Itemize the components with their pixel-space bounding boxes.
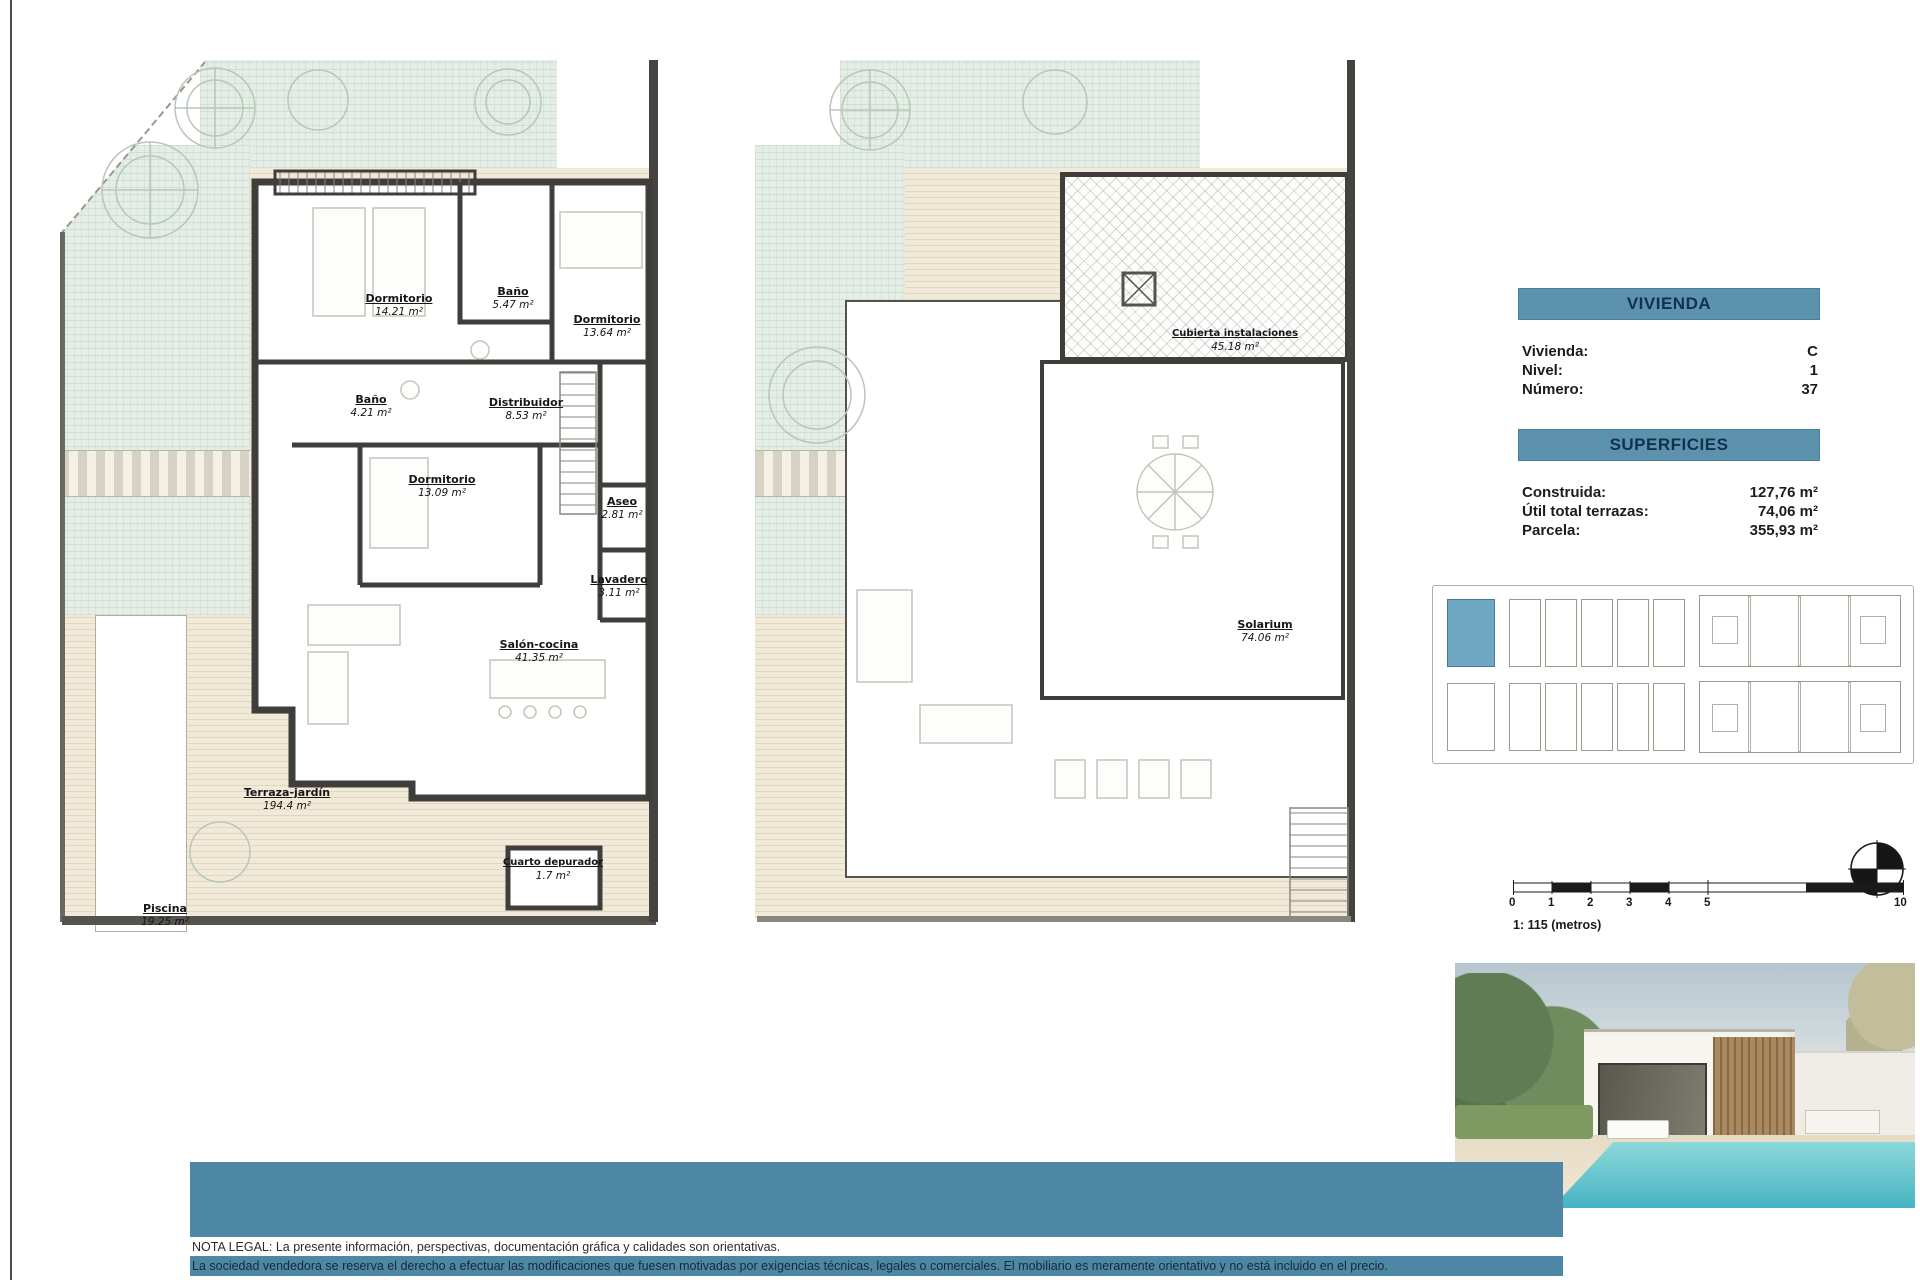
site-plan-block (1699, 681, 1901, 753)
site-plan-unit (1653, 599, 1685, 667)
site-plan-unit (1545, 599, 1577, 667)
room-label: Dormitorio13.09 m² (409, 473, 476, 500)
superficies-rows: Construida:127,76 m² Útil total terrazas… (1522, 483, 1818, 540)
site-plan-unit (1581, 683, 1613, 751)
info-row: Construida:127,76 m² (1522, 483, 1818, 502)
scale-tick: 1 (1548, 897, 1554, 909)
scale-tick: 3 (1626, 897, 1632, 909)
room-label: Cubierta instalaciones45.18 m² (1172, 328, 1298, 354)
scale-tick: 0 (1509, 897, 1515, 909)
room-label: Dormitorio13.64 m² (574, 313, 641, 340)
vivienda-header: VIVIENDA (1518, 288, 1820, 320)
scale-tick: 4 (1665, 897, 1671, 909)
site-plan-unit (1509, 599, 1541, 667)
superficies-header: SUPERFICIES (1518, 429, 1820, 461)
info-row: Parcela:355,93 m² (1522, 521, 1818, 540)
room-label: Piscina19.25 m² (141, 902, 189, 929)
site-plan-unit (1653, 683, 1685, 751)
site-plan-unit (1617, 599, 1649, 667)
scale-bar: 0 1 2 3 4 5 10 1: 115 (metros) (1513, 880, 1913, 952)
render-hedge (1455, 1105, 1593, 1139)
sheet-border-line (10, 0, 12, 1280)
floor-plan-roof: Cubierta instalaciones45.18 m² Solarium7… (755, 60, 1355, 935)
room-label: Salón-cocina41.35 m² (500, 638, 579, 665)
site-plan-unit (1581, 599, 1613, 667)
legal-note-line1: NOTA LEGAL: La presente información, per… (192, 1240, 1692, 1254)
render-wood-facade (1713, 1037, 1796, 1142)
scale-caption: 1: 115 (metros) (1513, 918, 1601, 932)
room-label: Aseo2.81 m² (601, 495, 642, 522)
vivienda-rows: Vivienda:C Nivel:1 Número:37 (1522, 342, 1818, 399)
legal-bar (190, 1162, 1563, 1237)
room-label: Baño5.47 m² (492, 285, 533, 312)
ground-plan-drawing (60, 60, 660, 935)
scale-tick: 5 (1704, 897, 1710, 909)
info-row: Nivel:1 (1522, 361, 1818, 380)
info-panel: VIVIENDA Vivienda:C Nivel:1 Número:37 SU… (1518, 288, 1820, 570)
info-row: Número:37 (1522, 380, 1818, 399)
room-label: Baño4.21 m² (350, 393, 391, 420)
render-dining-set (1805, 1110, 1881, 1134)
room-label: Dormitorio14.21 m² (366, 292, 433, 319)
info-row: Vivienda:C (1522, 342, 1818, 361)
site-plan-block (1699, 595, 1901, 667)
room-label: Terraza-jardín194.4 m² (244, 786, 330, 813)
info-row: Útil total terrazas:74,06 m² (1522, 502, 1818, 521)
room-label: Solarium74.06 m² (1237, 618, 1292, 645)
floor-plan-ground: Dormitorio14.21 m² Baño5.47 m² Dormitori… (60, 60, 660, 935)
site-plan (1432, 585, 1914, 764)
room-label: Lavadero3.11 m² (590, 573, 647, 600)
site-plan-unit (1545, 683, 1577, 751)
render-lounge-furniture (1607, 1120, 1669, 1139)
room-label: Distribuidor8.53 m² (489, 396, 563, 423)
scale-bar-graphic (1513, 880, 1908, 896)
site-plan-highlighted-unit (1447, 599, 1495, 667)
legal-note-line2: La sociedad vendedora se reserva el dere… (192, 1259, 1388, 1273)
plan-sheet: Dormitorio14.21 m² Baño5.47 m² Dormitori… (0, 0, 1920, 1280)
site-plan-unit (1509, 683, 1541, 751)
scale-tick: 10 (1894, 897, 1907, 909)
scale-tick: 2 (1587, 897, 1593, 909)
room-label: Cuarto depurador1.7 m² (503, 857, 603, 883)
legal-strip: La sociedad vendedora se reserva el dere… (190, 1256, 1563, 1276)
site-plan-unit (1447, 683, 1495, 751)
site-plan-unit (1617, 683, 1649, 751)
roof-plan-drawing (755, 60, 1355, 935)
